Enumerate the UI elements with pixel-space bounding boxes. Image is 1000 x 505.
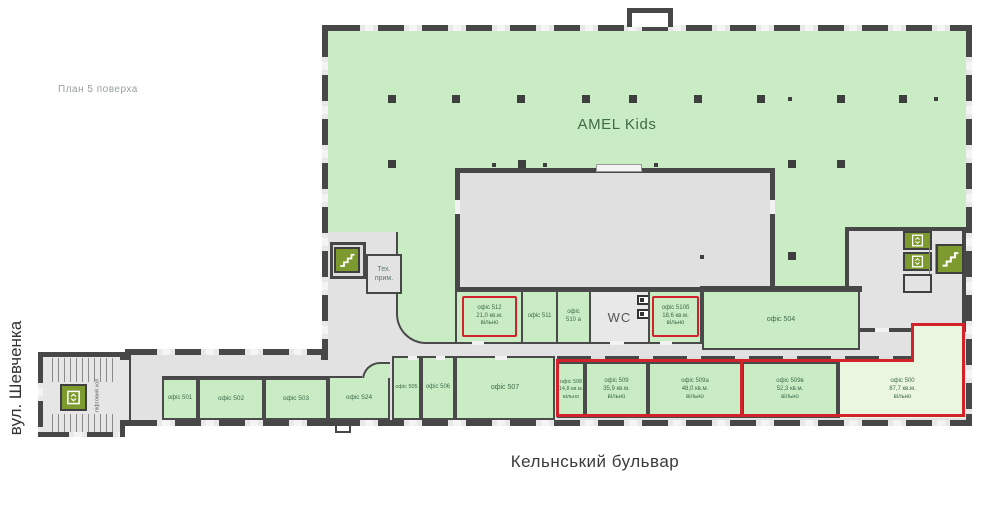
street-label-shevchenka: вул. Шевченка	[6, 298, 28, 458]
window-strip	[334, 420, 960, 426]
column	[388, 160, 396, 168]
column	[582, 95, 590, 103]
room-510a: офіс 510 а	[556, 290, 591, 344]
door-gap	[660, 341, 672, 345]
window-strip	[131, 420, 317, 426]
column	[757, 95, 765, 103]
room-label: офіс 510б	[662, 305, 690, 313]
column	[788, 160, 796, 168]
room-502: офіс 502	[198, 378, 264, 420]
room-area: 21,0 кв.м.	[476, 313, 503, 321]
central-core	[455, 168, 775, 292]
tech-room: Тех. прим.	[366, 254, 402, 294]
column	[694, 95, 702, 103]
green-corridor	[396, 232, 456, 344]
red-zone-outline-notch-v	[911, 325, 914, 362]
room-509a: офіс 509а 48,0 кв.м. вільно	[648, 362, 742, 418]
room-area: 48,0 кв.м.	[682, 386, 709, 394]
door-gap	[455, 200, 460, 214]
stairs-icon	[940, 249, 960, 269]
column	[517, 95, 525, 103]
room-509v: офіс 509в 52,3 кв.м. вільно	[742, 362, 838, 418]
window-strip	[131, 349, 322, 355]
room-label: офіс 503	[283, 395, 309, 403]
column	[837, 160, 845, 168]
column	[518, 160, 526, 168]
room-area: 87,7 кв.м.	[889, 386, 916, 394]
door-gap	[408, 356, 417, 360]
room-label: офіс 500	[890, 378, 914, 386]
window-strip	[38, 357, 43, 432]
room-509: офіс 509 35,9 кв.м. вільно	[585, 362, 648, 418]
room-label: 510 а	[566, 317, 581, 325]
door-gap	[875, 328, 889, 332]
room-503: офіс 503	[264, 378, 328, 420]
room-label: офіс 507	[491, 383, 519, 392]
door-gap	[770, 200, 775, 214]
column	[934, 97, 938, 101]
stairs-icon	[338, 251, 356, 269]
door-gap	[495, 356, 507, 360]
room-500: офіс 500 87,7 кв.м. вільно	[838, 362, 965, 418]
room-508: офіс 508 14,8 кв.м. вільно	[557, 362, 585, 418]
window-strip	[43, 432, 120, 437]
room-area: 14,8 кв.м.	[559, 386, 583, 393]
column	[654, 163, 658, 167]
door-gap	[610, 341, 624, 345]
column	[543, 163, 547, 167]
street-label-kelnskyi: Кельнський бульвар	[445, 452, 745, 472]
wc-label: WC	[608, 310, 632, 325]
column	[700, 255, 704, 259]
column	[629, 95, 637, 103]
column	[388, 95, 396, 103]
tech-room-label: Тех.	[377, 265, 390, 274]
red-zone-outline-bottom	[556, 414, 965, 417]
room-area: 52,3 кв.м.	[777, 386, 804, 394]
room-505: офіс 505	[392, 356, 421, 420]
red-zone-outline-notch-h	[911, 323, 965, 326]
tech-room-label: прим.	[375, 274, 393, 283]
plan-title: План 5 поверха	[58, 84, 138, 95]
room-area: 35,9 кв.м.	[603, 386, 630, 394]
service-room-small	[903, 274, 932, 293]
highlight-box-510b: офіс 510б 18,6 кв.м. вільно	[652, 296, 699, 337]
red-zone-divider	[740, 359, 743, 417]
room-label: офіс 509а	[681, 378, 709, 386]
room-label: офіс 502	[218, 395, 244, 403]
door-gap	[472, 341, 484, 345]
red-zone-outline-left	[556, 359, 559, 417]
room-status: вільно	[481, 320, 499, 328]
column	[492, 163, 496, 167]
floor-plan-page: { "plan_title": "План 5 поверха", "stree…	[0, 0, 1000, 505]
elevator-left	[60, 384, 87, 411]
column	[452, 95, 460, 103]
column	[837, 95, 845, 103]
room-status: вільно	[608, 394, 626, 402]
elevator-right-2	[903, 252, 932, 271]
room-label: офіс 505	[395, 384, 417, 391]
room-500-notch	[911, 323, 965, 364]
room-status: вільно	[781, 394, 799, 402]
stairs-right	[936, 244, 964, 274]
amel-label: AMEL Kids	[557, 116, 677, 133]
room-label: офіс 508	[560, 379, 582, 386]
stair-hatching	[929, 244, 936, 274]
room-area: 18,6 кв.м.	[662, 313, 689, 321]
column	[788, 252, 796, 260]
room-label: офіс 506	[426, 384, 450, 392]
column	[899, 95, 907, 103]
room-status: вільно	[894, 394, 912, 402]
room-label: офіс 511	[528, 313, 552, 321]
room-status: вільно	[667, 320, 685, 328]
window-strip	[966, 31, 972, 414]
room-511: офіс 511	[521, 290, 558, 344]
elevator-icon	[66, 390, 81, 405]
room-label: офіс 512	[477, 305, 501, 313]
red-zone-outline-top	[556, 359, 914, 362]
room-label: офіс 501	[168, 395, 192, 403]
room-label: офіс	[567, 309, 580, 317]
elevator-icon	[911, 234, 924, 247]
stairs-left-mid	[334, 247, 360, 273]
entrance-vestibule	[627, 8, 673, 27]
door-gap	[436, 356, 445, 360]
room-507: офіс 507	[455, 356, 555, 420]
corridor-opening	[119, 360, 129, 420]
entrance-step	[335, 424, 351, 433]
room-label: офіс 524	[346, 394, 372, 402]
room-label: офіс 509	[604, 378, 628, 386]
lift-hall-label: ліфтовий хол	[95, 361, 106, 431]
room-501: офіс 501	[162, 378, 198, 420]
room-label: офіс 504	[767, 315, 795, 324]
elevator-right-1	[903, 231, 932, 250]
red-zone-outline-right	[962, 323, 965, 417]
highlight-box-512: офіс 512 21,0 кв.м. вільно	[462, 296, 517, 337]
room-524: офіс 524	[328, 378, 390, 420]
room-504: офіс 504	[702, 290, 860, 350]
green-area-right	[775, 232, 845, 292]
column	[788, 97, 792, 101]
room-status: вільно	[563, 394, 579, 401]
room-status: вільно	[686, 394, 704, 402]
elevator-icon	[911, 255, 924, 268]
room-506: офіс 506	[421, 356, 455, 420]
room-label: офіс 509в	[776, 378, 803, 386]
core-door	[596, 164, 642, 172]
